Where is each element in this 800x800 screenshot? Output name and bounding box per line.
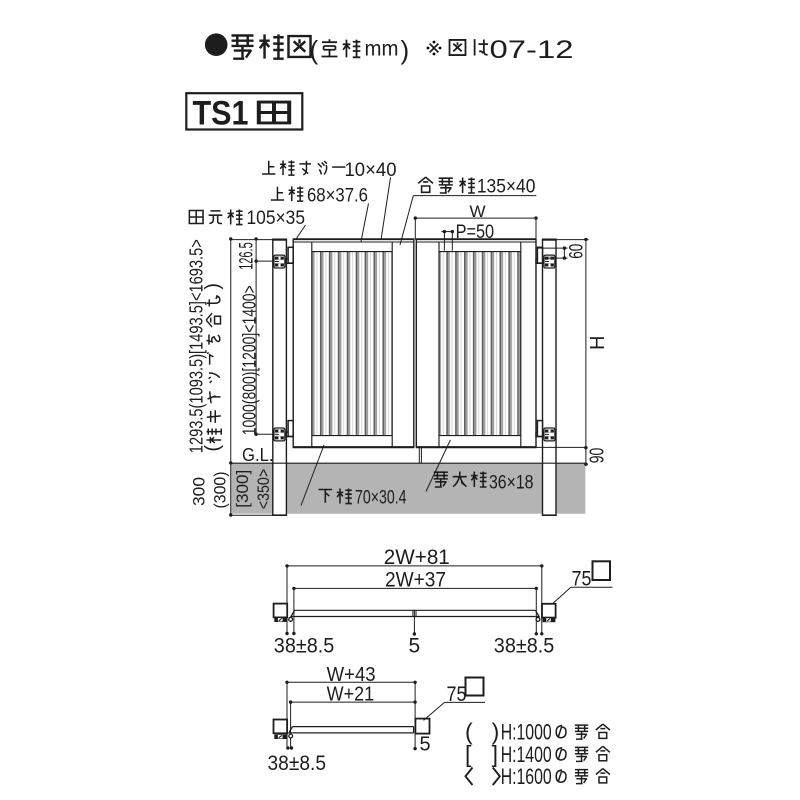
svg-text:H:1000: H:1000: [501, 720, 552, 745]
svg-text:(: (: [310, 35, 319, 65]
svg-text:38±8.5: 38±8.5: [268, 752, 327, 775]
svg-text:P=50: P=50: [456, 222, 495, 243]
svg-text:90: 90: [586, 448, 608, 464]
svg-text:38±8.5: 38±8.5: [494, 634, 555, 657]
svg-text:38±8.5: 38±8.5: [274, 634, 335, 657]
svg-text:(: (: [202, 445, 224, 452]
svg-text:5: 5: [409, 634, 421, 657]
svg-text:H: H: [587, 336, 609, 350]
svg-text:1293.5(1093.5)[1493.5]<1693.5>: 1293.5(1093.5)[1493.5]<1693.5>: [186, 239, 207, 453]
svg-text:): ): [202, 283, 224, 290]
svg-text:(300): (300): [210, 472, 229, 509]
svg-text:07-12: 07-12: [490, 36, 574, 64]
svg-text:1000(800)[1200]<1400>: 1000(800)[1200]<1400>: [238, 285, 259, 435]
svg-text:300: 300: [190, 477, 208, 506]
svg-text:70×30.4: 70×30.4: [355, 488, 407, 509]
svg-text:[300]: [300]: [233, 470, 252, 508]
svg-text:135×40: 135×40: [477, 177, 536, 198]
svg-text:<350>: <350>: [254, 469, 273, 510]
svg-text:TS1: TS1: [193, 95, 249, 133]
svg-text:105×35: 105×35: [247, 208, 306, 229]
svg-text:mm: mm: [365, 38, 399, 61]
svg-text:[: [: [465, 741, 472, 767]
svg-text:W+21: W+21: [327, 683, 375, 705]
svg-text:): ): [401, 35, 410, 65]
svg-text:36×18: 36×18: [489, 473, 534, 494]
svg-text:]: ]: [492, 741, 498, 767]
svg-text:10×40: 10×40: [345, 160, 397, 181]
svg-text:68×37.6: 68×37.6: [307, 186, 368, 207]
svg-text:126.5: 126.5: [236, 242, 257, 270]
svg-text:60: 60: [566, 244, 587, 259]
svg-text:2W+81: 2W+81: [384, 546, 450, 569]
svg-text:H:1600: H:1600: [501, 764, 552, 789]
svg-text:W: W: [470, 202, 486, 221]
svg-text:2W+37: 2W+37: [385, 568, 446, 591]
svg-text:5: 5: [420, 734, 431, 756]
svg-text:G.L.: G.L.: [242, 445, 274, 465]
